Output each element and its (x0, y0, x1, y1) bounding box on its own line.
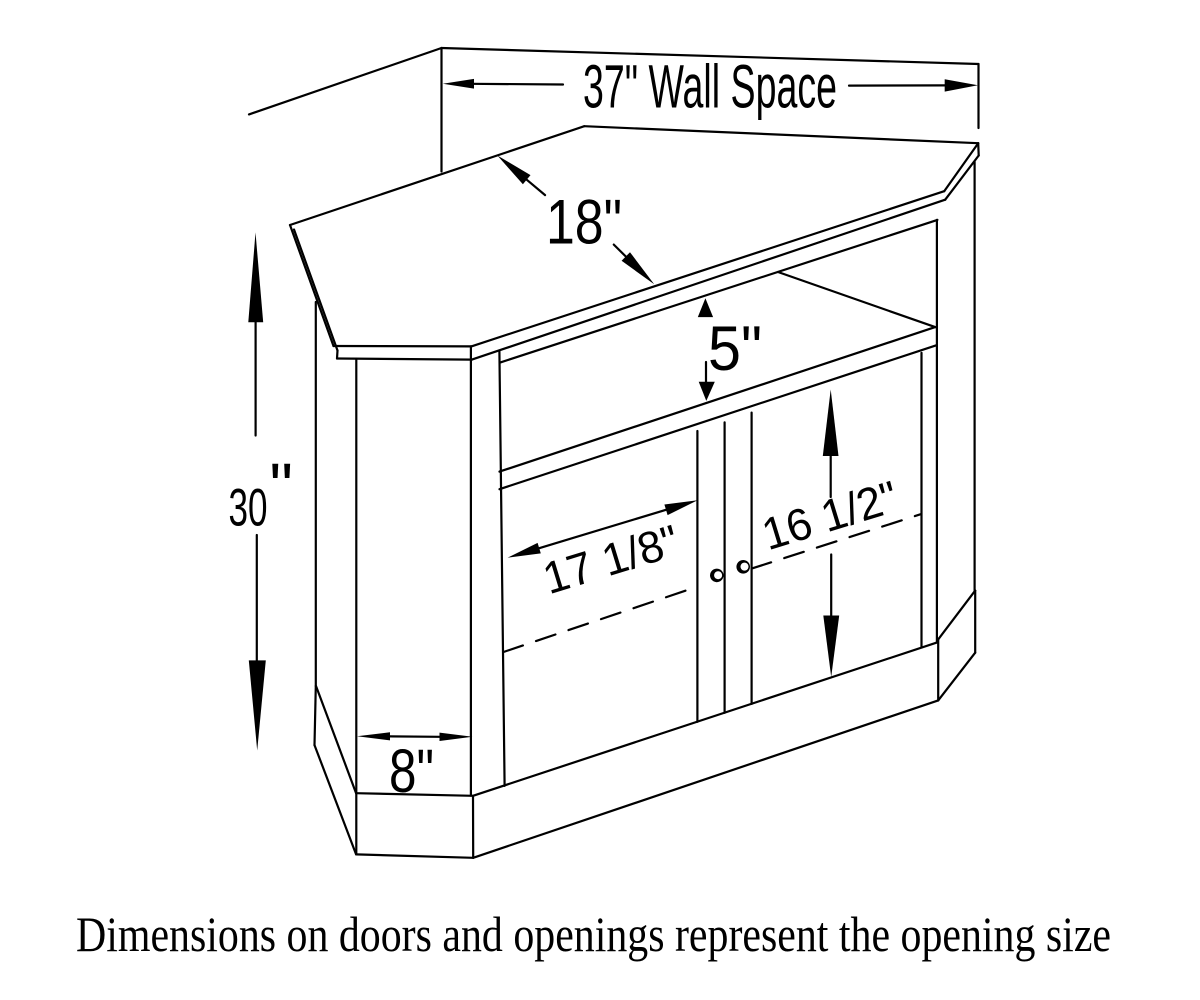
svg-text:": " (270, 449, 293, 523)
svg-text:30: 30 (229, 479, 268, 538)
svg-text:18": 18" (546, 187, 622, 257)
svg-text:5": 5" (708, 314, 762, 384)
svg-text:37" Wall Space: 37" Wall Space (583, 53, 837, 121)
svg-text:Dimensions on doors and openin: Dimensions on doors and openings represe… (76, 906, 1111, 962)
svg-text:8": 8" (389, 737, 434, 806)
